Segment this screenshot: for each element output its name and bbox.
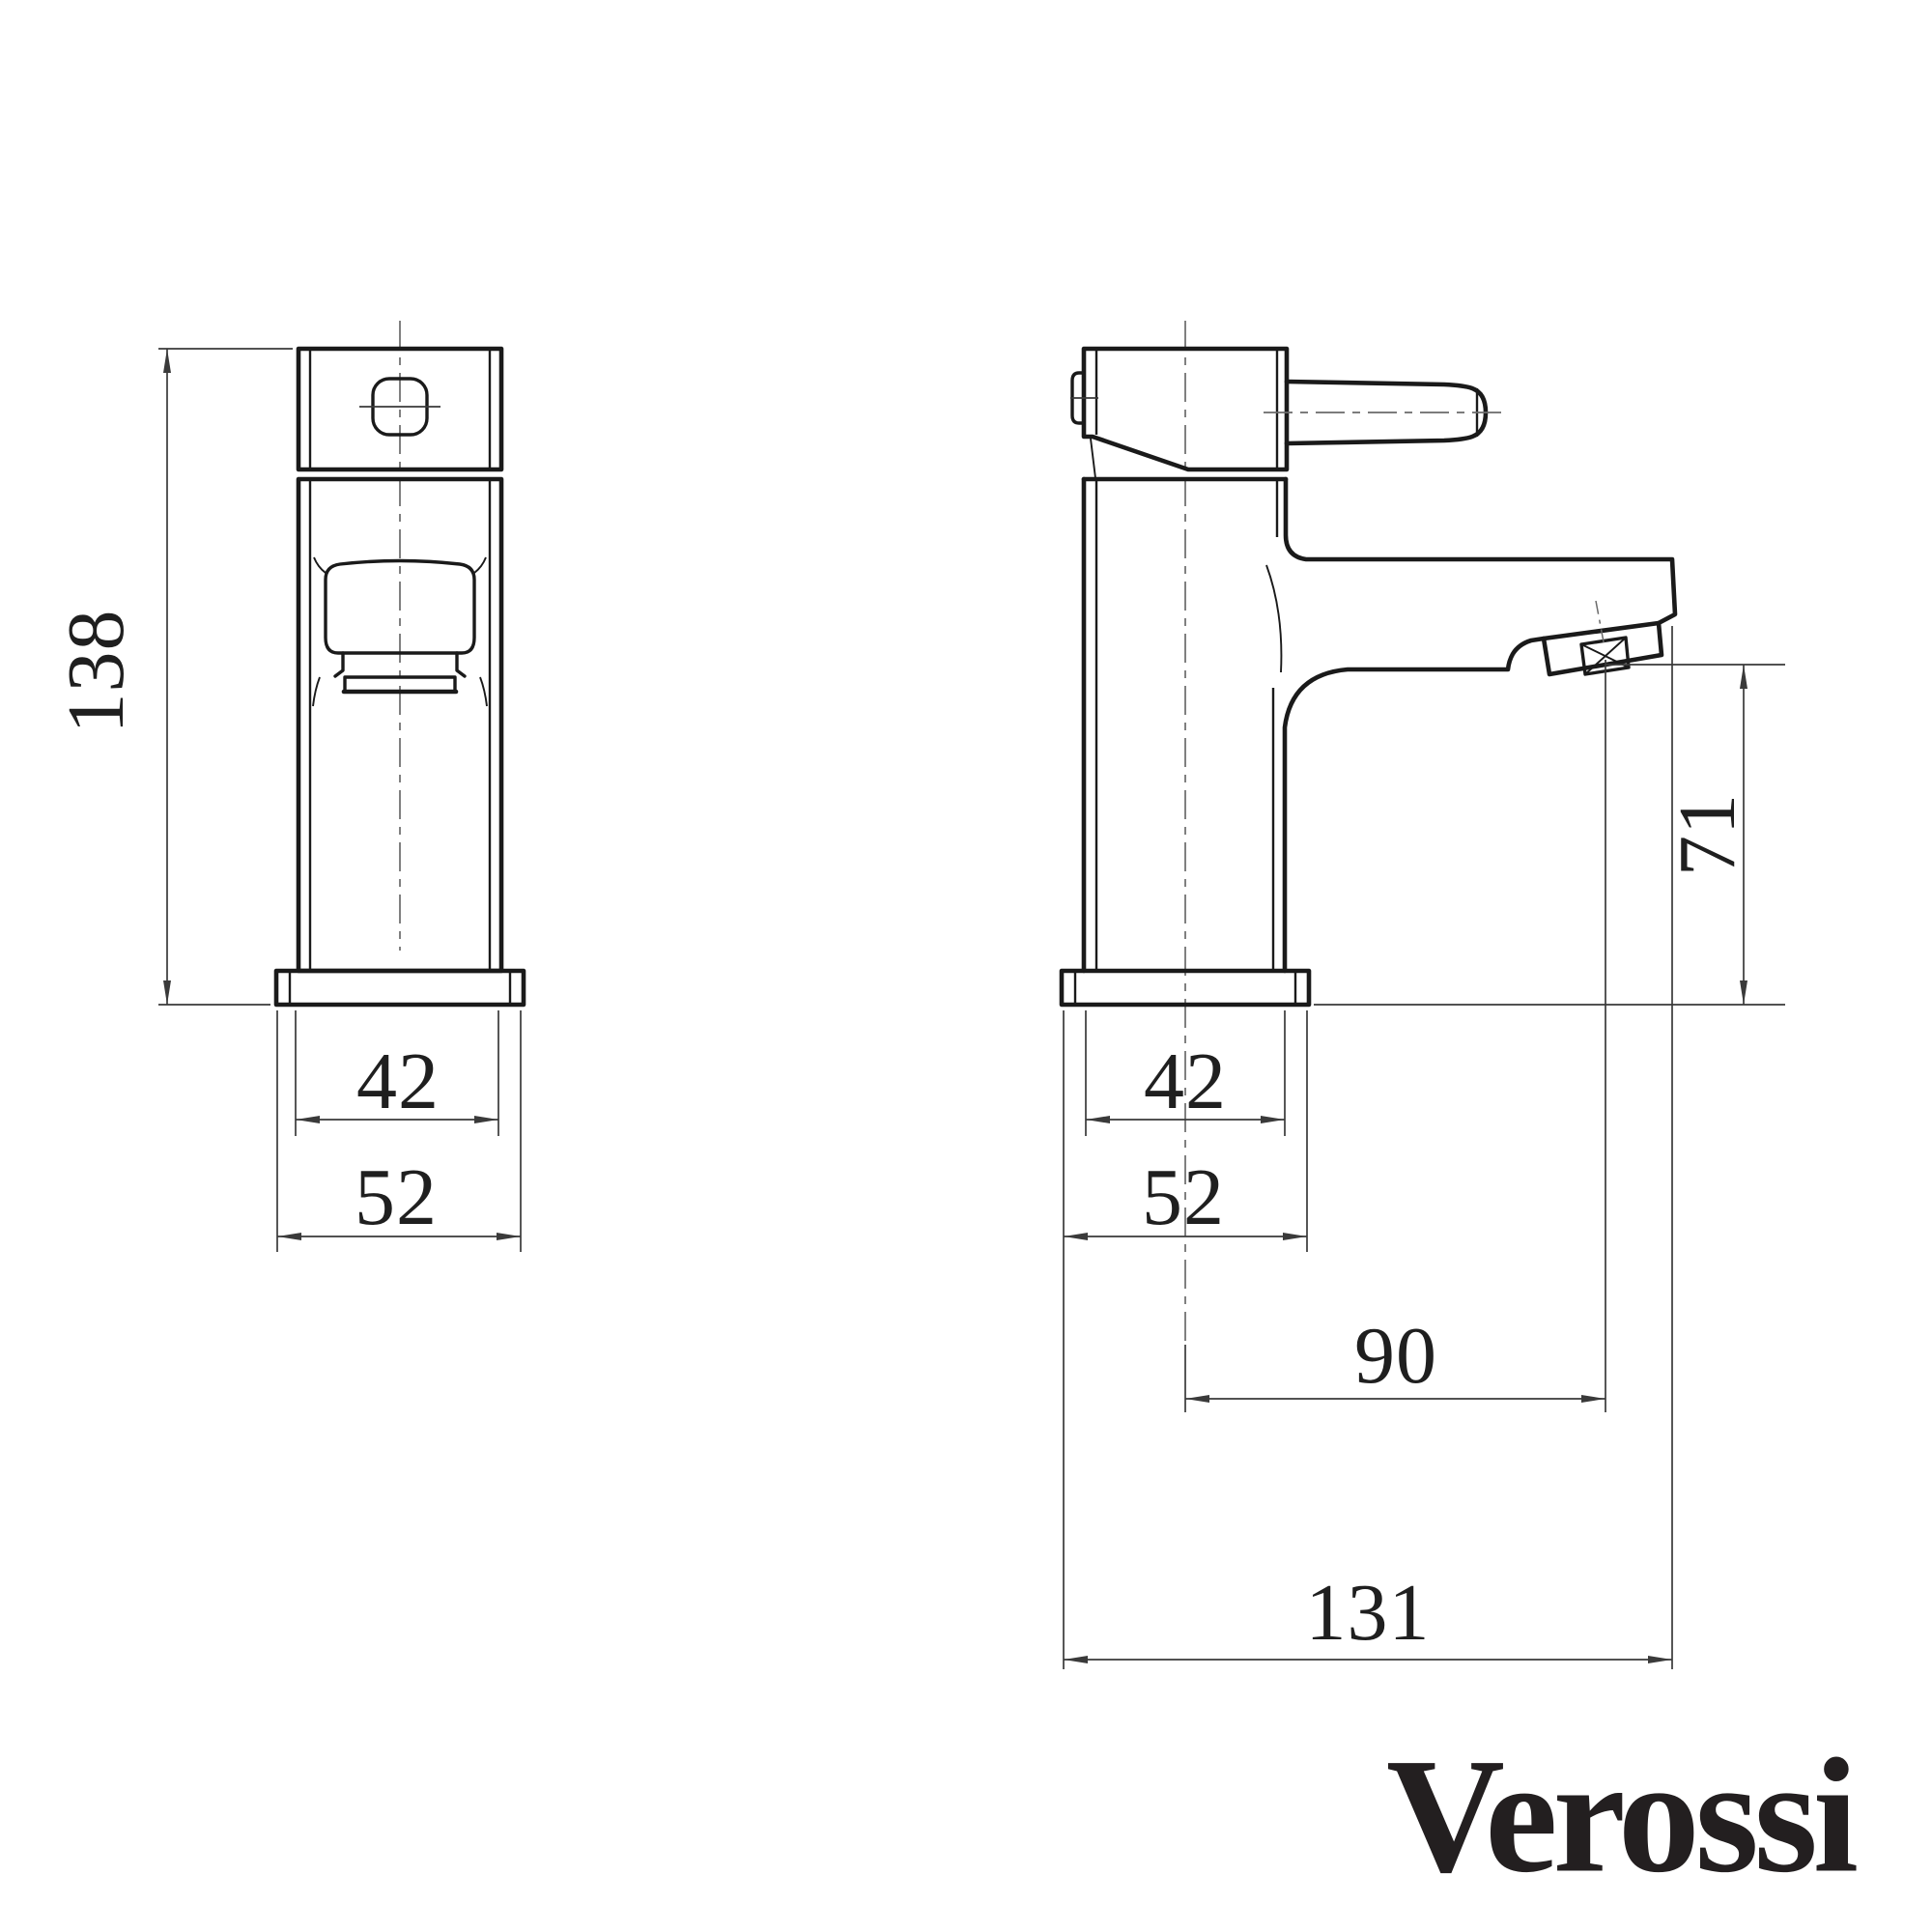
whisker-upper-right: [474, 557, 486, 573]
technical-drawing-svg: [0, 0, 1932, 1932]
side-dim-depth-131: [1064, 626, 1672, 1669]
spout-outline: [1285, 479, 1675, 971]
dim-text-overall-depth-131: 131: [1306, 1573, 1431, 1654]
whisker-lower-left: [313, 677, 320, 706]
dim-text-front-body-42: 42: [356, 1041, 440, 1122]
drawing-canvas: 138 42 52 42 52 90 131 71 Verossi: [0, 0, 1932, 1932]
side-handle-block: [1070, 349, 1287, 478]
side-lever: [1264, 382, 1509, 443]
wedge-silhouette: [1091, 439, 1095, 478]
whisker-lower-right: [480, 677, 487, 706]
spout-tangent-arc: [1266, 565, 1281, 672]
front-dim-height-138: [158, 349, 293, 1005]
dim-text-height-138: 138: [56, 610, 137, 734]
side-dim-reach-90: [1185, 660, 1605, 1412]
dim-text-side-body-42: 42: [1144, 1041, 1227, 1122]
dim-text-front-base-52: 52: [355, 1157, 438, 1238]
dim-text-side-base-52: 52: [1142, 1157, 1225, 1238]
side-body-spout: [1084, 479, 1675, 971]
dim-text-spout-reach-90: 90: [1354, 1316, 1437, 1397]
front-base-plate: [276, 971, 524, 1005]
dim-text-spout-height-71: 71: [1667, 793, 1748, 876]
whisker-upper-left: [314, 557, 326, 573]
front-view: [276, 321, 524, 1005]
brand-logo: Verossi: [1386, 1722, 1854, 1911]
